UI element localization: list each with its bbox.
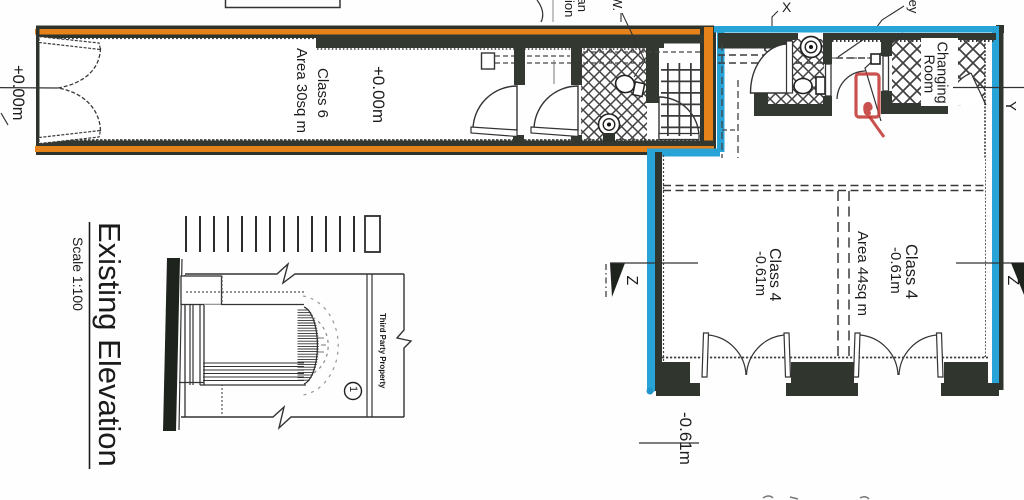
svg-text:X: X	[782, 0, 792, 15]
svg-text:Key: Key	[906, 0, 921, 14]
svg-text:Area 30sq m: Area 30sq m	[293, 48, 310, 133]
svg-text:+0.00m: +0.00m	[369, 66, 388, 123]
svg-text:Room: Room	[921, 55, 937, 94]
svg-text:Third Party Property: Third Party Property	[378, 313, 387, 389]
svg-text:Area 44sq m: Area 44sq m	[854, 231, 871, 316]
svg-text:Y: Y	[1002, 101, 1019, 111]
svg-text:-0.61m: -0.61m	[676, 412, 695, 465]
svg-text:Existing Elevation: Existing Elevation	[92, 222, 127, 467]
svg-text:Class 6: Class 6	[314, 68, 331, 118]
svg-text:Scale 1:100: Scale 1:100	[70, 237, 86, 311]
svg-text:+0.00m: +0.00m	[9, 65, 27, 121]
svg-text:-0.61m: -0.61m	[752, 251, 768, 296]
svg-text:W.: W.	[610, 0, 625, 11]
svg-text:Section: Section	[562, 0, 577, 17]
svg-text:-0.61m: -0.61m	[887, 247, 904, 294]
svg-text:1: 1	[347, 386, 359, 392]
svg-text:Z: Z	[623, 276, 640, 286]
svg-text:Z: Z	[1004, 276, 1021, 286]
